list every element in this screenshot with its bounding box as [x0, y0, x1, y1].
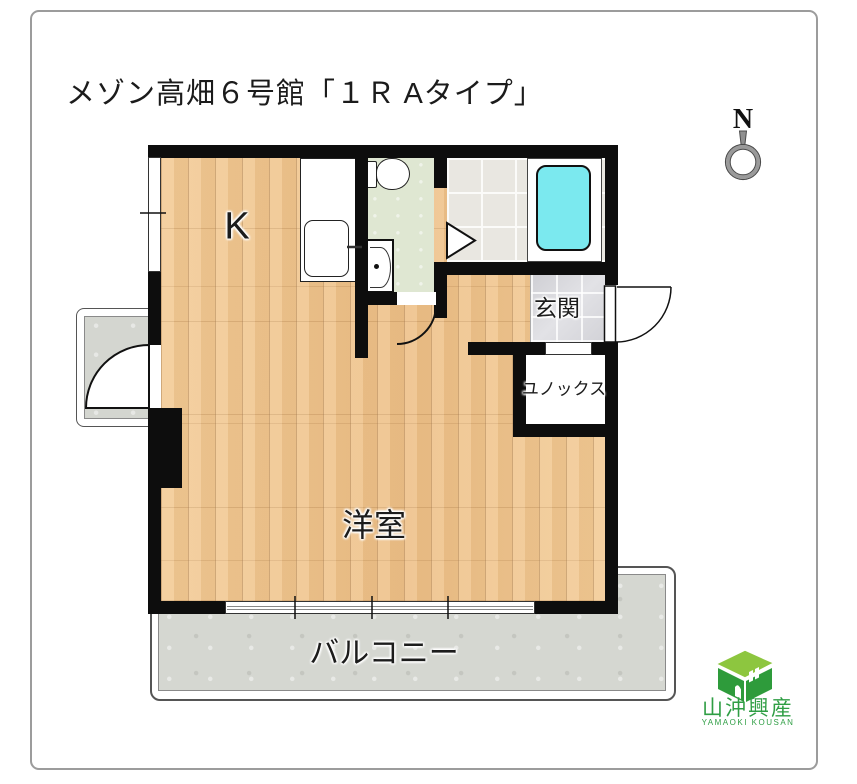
room-label-kitchen: K — [224, 206, 249, 249]
toilet-bowl-icon — [376, 158, 410, 190]
washbasin-drain-icon — [374, 264, 379, 269]
wall-washroom-bath-upper — [434, 145, 447, 188]
entrance-doorway-gap — [605, 285, 618, 342]
room-label-western-room: 洋室 — [342, 500, 406, 546]
wall-right — [605, 145, 618, 614]
washroom-doorway-gap — [397, 292, 436, 305]
bathtub-icon — [536, 165, 591, 251]
alcove-doorway-gap — [148, 345, 161, 408]
alcove-floor — [84, 316, 150, 419]
wall-left-mid — [148, 272, 161, 345]
wall-kitchen-washroom — [355, 145, 368, 358]
wall-closet-bottom — [513, 424, 618, 437]
left-wall-window-icon — [148, 157, 161, 272]
wall-entrance-bottom — [468, 342, 618, 355]
compass: N — [705, 95, 785, 190]
wall-bath-bottom — [434, 262, 618, 275]
wall-left-pillar — [148, 408, 182, 488]
room-label-closet: ユノックス — [522, 375, 606, 400]
compass-ring-outer — [726, 145, 761, 180]
wall-left-upper — [148, 145, 161, 157]
wall-left-lower — [148, 488, 161, 614]
room-label-entrance: 玄関 — [534, 289, 580, 323]
washbasin-bowl-icon — [370, 247, 391, 288]
closet-threshold — [545, 342, 592, 355]
wall-top — [148, 145, 618, 158]
company-name-romaji: YAMAOKI KOUSAN — [694, 718, 802, 727]
balcony-sliding-window-icon — [225, 601, 535, 614]
floor-plan-page: メゾン高畑６号館「１Ｒ Aタイプ」 N — [0, 0, 857, 784]
kitchen-sink-icon — [304, 220, 349, 277]
page-title: メゾン高畑６号館「１Ｒ Aタイプ」 — [66, 70, 544, 112]
compass-north-label: N — [733, 104, 753, 135]
room-label-balcony: バルコニー — [309, 628, 458, 672]
